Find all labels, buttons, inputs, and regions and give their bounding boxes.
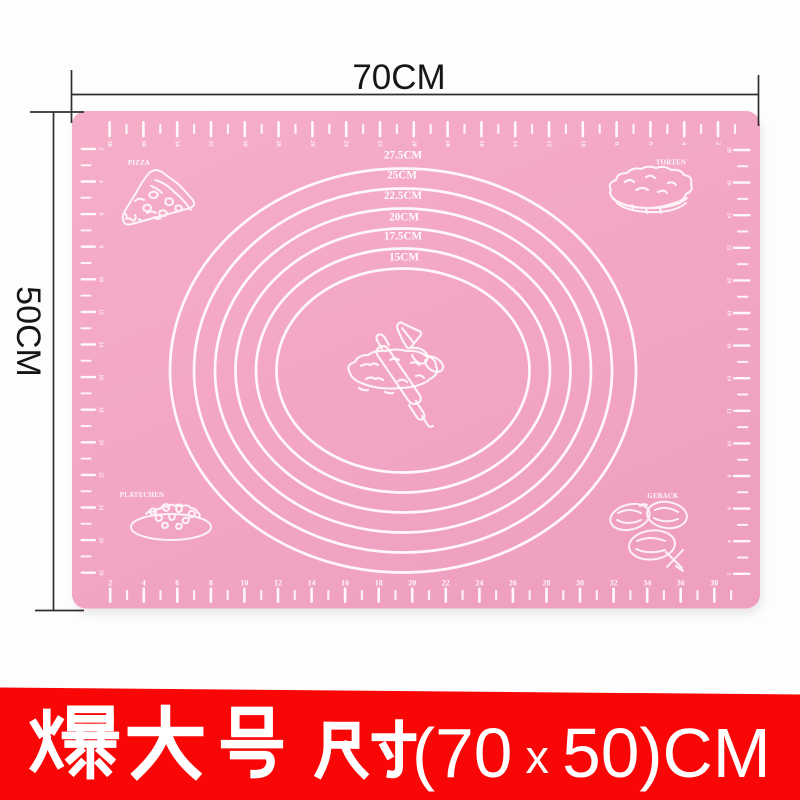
svg-text:26: 26 <box>98 537 104 543</box>
svg-text:12: 12 <box>726 408 732 414</box>
svg-text:10: 10 <box>240 579 248 588</box>
svg-text:30: 30 <box>576 579 584 588</box>
svg-text:2: 2 <box>98 147 104 150</box>
svg-text:20: 20 <box>410 140 417 147</box>
svg-text:24: 24 <box>475 579 483 588</box>
svg-text:12: 12 <box>274 579 282 588</box>
svg-text:16: 16 <box>341 579 349 588</box>
svg-text:28: 28 <box>543 579 551 588</box>
svg-text:27.5CM: 27.5CM <box>384 150 423 162</box>
svg-text:28: 28 <box>275 140 282 147</box>
svg-text:17.5CM: 17.5CM <box>384 231 423 243</box>
svg-text:18: 18 <box>726 310 732 316</box>
svg-text:22: 22 <box>726 245 732 251</box>
svg-text:10: 10 <box>726 441 732 447</box>
svg-text:22: 22 <box>98 472 104 478</box>
svg-text:18: 18 <box>375 579 383 588</box>
svg-text:18: 18 <box>444 140 451 147</box>
svg-text:32: 32 <box>208 140 215 147</box>
svg-text:32: 32 <box>610 579 618 588</box>
svg-text:14: 14 <box>512 140 519 147</box>
svg-text:36: 36 <box>140 140 147 147</box>
svg-text:12: 12 <box>546 140 553 147</box>
svg-text:4: 4 <box>142 579 146 588</box>
svg-text:26: 26 <box>309 140 316 147</box>
svg-text:25CM: 25CM <box>387 170 417 182</box>
svg-text:36: 36 <box>677 579 685 588</box>
svg-text:10: 10 <box>579 140 586 147</box>
svg-text:14: 14 <box>308 579 316 588</box>
svg-text:18: 18 <box>98 407 104 413</box>
svg-text:20: 20 <box>98 439 104 445</box>
svg-text:20CM: 20CM <box>389 212 419 224</box>
svg-text:20: 20 <box>726 278 732 284</box>
svg-text:38: 38 <box>106 140 113 147</box>
svg-text:24: 24 <box>726 212 732 218</box>
svg-text:20: 20 <box>408 579 416 588</box>
svg-text:22.5CM: 22.5CM <box>384 190 423 202</box>
svg-text:30: 30 <box>241 140 248 147</box>
svg-text:8: 8 <box>209 579 213 588</box>
svg-text:2: 2 <box>726 572 732 575</box>
svg-text:22: 22 <box>377 140 384 147</box>
svg-text:26: 26 <box>726 180 732 186</box>
svg-text:22: 22 <box>442 579 450 588</box>
svg-text:34: 34 <box>174 140 181 147</box>
svg-text:16: 16 <box>98 374 104 380</box>
svg-text:PLATECHEN: PLATECHEN <box>120 492 165 499</box>
svg-text:34: 34 <box>643 579 651 588</box>
svg-text:26: 26 <box>509 579 517 588</box>
svg-text:6: 6 <box>726 507 732 510</box>
svg-text:10: 10 <box>98 276 104 282</box>
svg-text:(70 x 50)CM: (70 x 50)CM <box>412 714 771 792</box>
svg-text:70CM: 70CM <box>352 58 445 97</box>
svg-text:24: 24 <box>343 140 350 147</box>
svg-text:8: 8 <box>726 475 732 478</box>
svg-text:6: 6 <box>175 579 179 588</box>
svg-text:38: 38 <box>710 579 718 588</box>
svg-text:2: 2 <box>108 579 112 588</box>
svg-text:GEBACK: GEBACK <box>647 493 679 500</box>
svg-text:28: 28 <box>726 147 732 153</box>
svg-text:8: 8 <box>98 245 104 248</box>
svg-text:4: 4 <box>98 180 104 183</box>
svg-text:28: 28 <box>98 570 104 576</box>
svg-text:4: 4 <box>726 540 732 543</box>
svg-text:6: 6 <box>98 213 104 216</box>
svg-text:TORTEN: TORTEN <box>656 160 686 167</box>
svg-text:16: 16 <box>726 343 732 349</box>
svg-text:50CM: 50CM <box>9 286 47 377</box>
svg-text:14: 14 <box>726 375 732 381</box>
svg-text:16: 16 <box>478 140 485 147</box>
svg-text:15CM: 15CM <box>389 252 419 264</box>
svg-text:12: 12 <box>98 309 104 315</box>
svg-text:PIZZA: PIZZA <box>128 160 150 167</box>
svg-text:24: 24 <box>98 505 104 511</box>
svg-text:14: 14 <box>98 342 104 348</box>
